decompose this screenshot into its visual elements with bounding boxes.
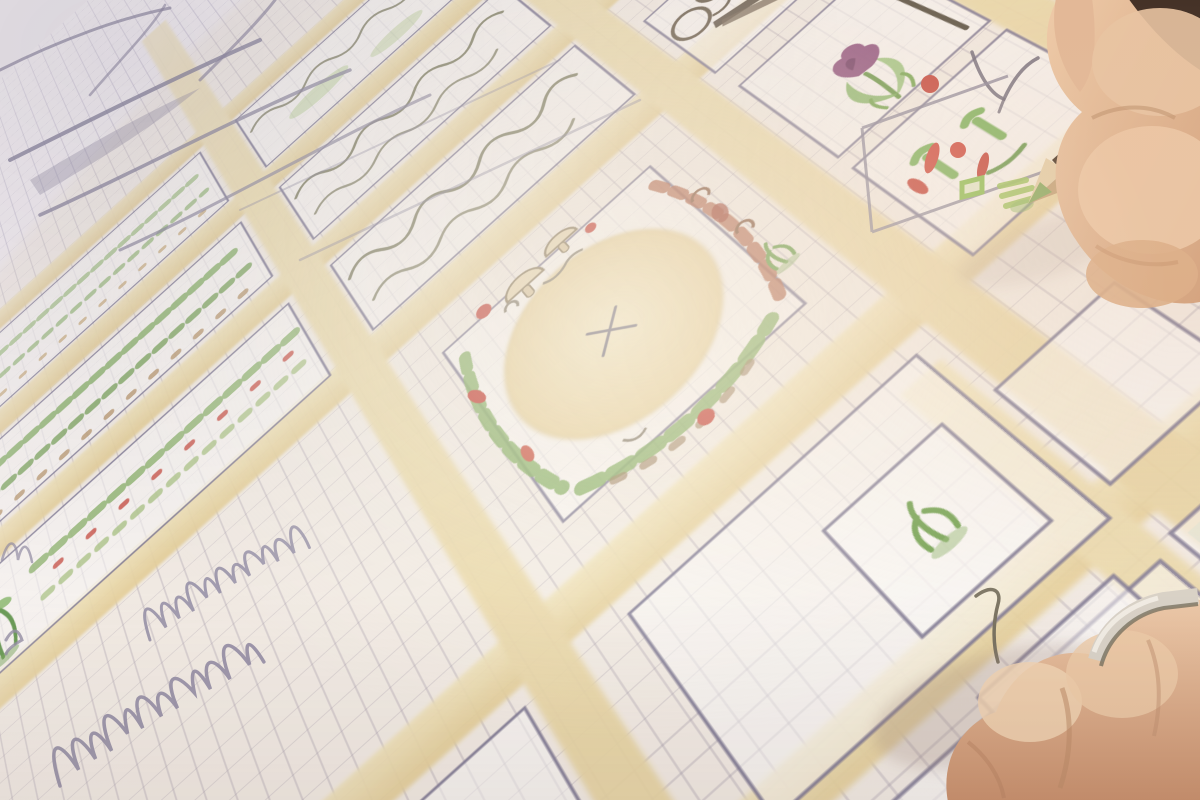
hands-layer: [0, 0, 1200, 800]
photo-garden-plan-sketch: [0, 0, 1200, 800]
resting-hand: [861, 596, 1200, 800]
drawing-hand: [949, 0, 1200, 308]
